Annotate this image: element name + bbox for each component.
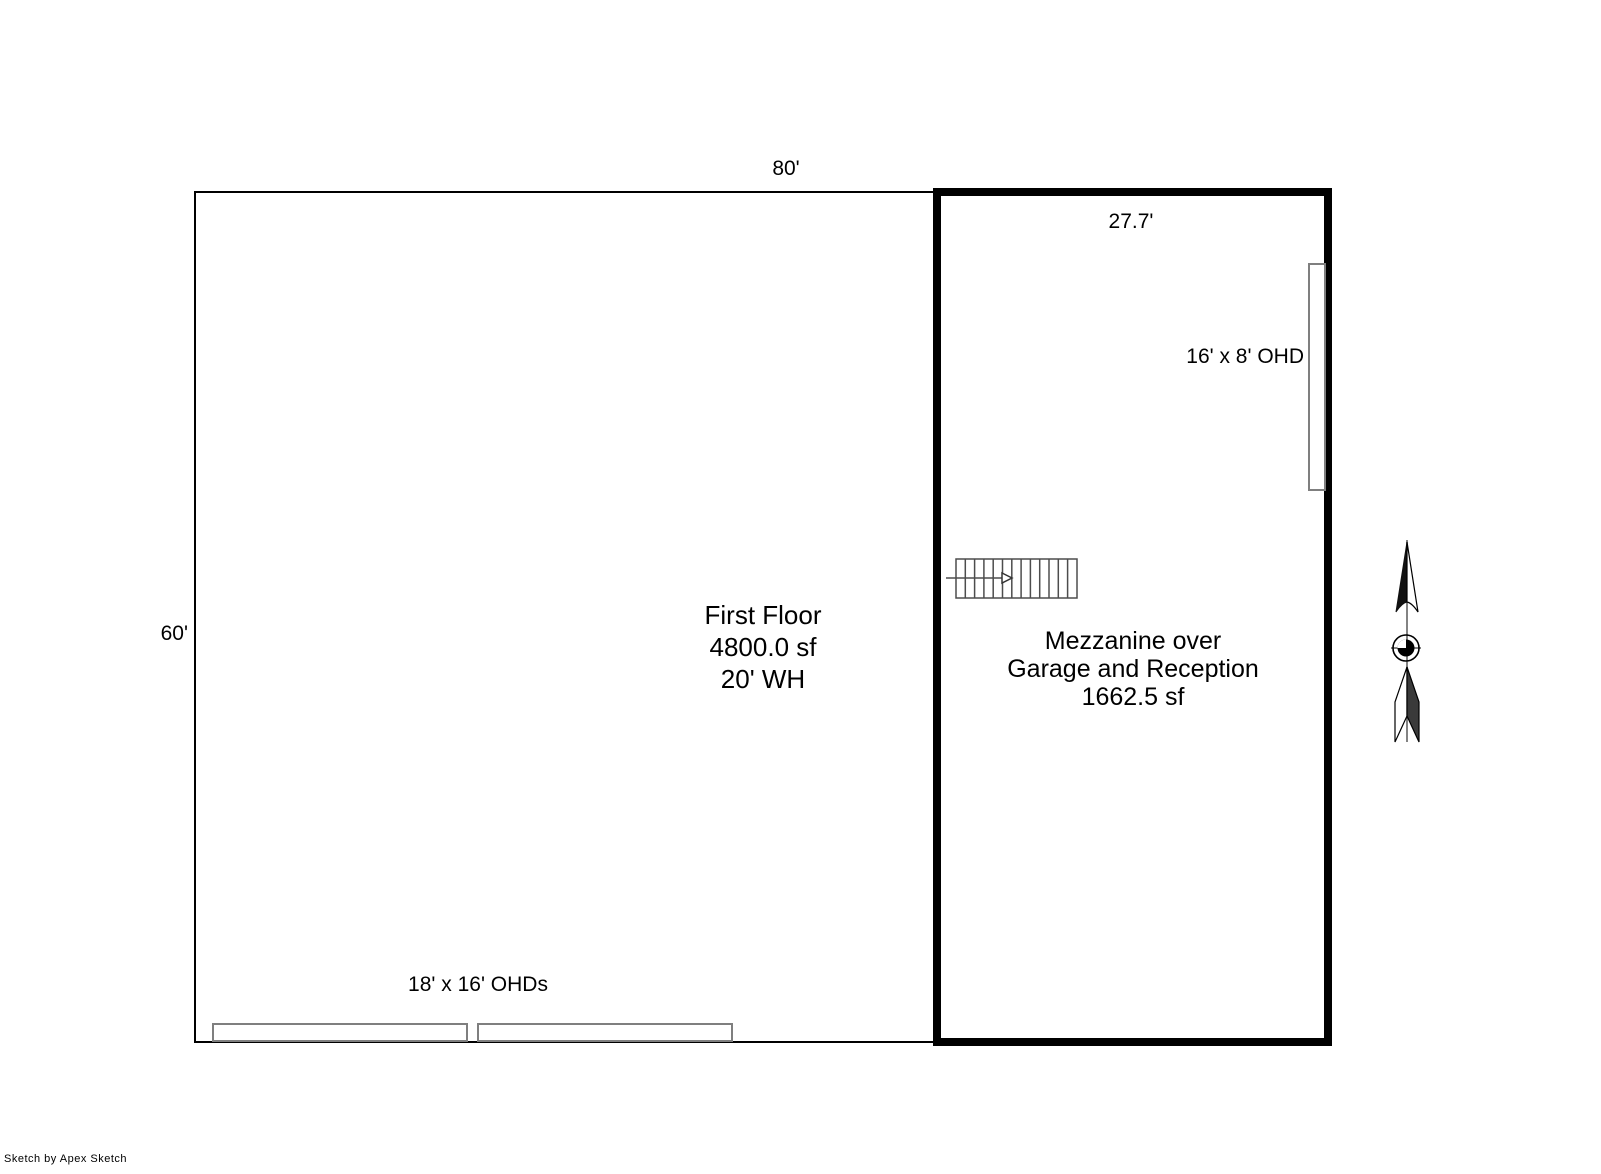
mezzanine-name-line1: Mezzanine over <box>983 627 1283 655</box>
north-fletching-light-half <box>1395 667 1407 742</box>
north-arrowhead-light-half <box>1407 542 1418 612</box>
mezzanine-room-outline <box>933 188 1332 1046</box>
mezzanine-label: Mezzanine over Garage and Reception 1662… <box>983 627 1283 711</box>
north-arrowhead-dark-half <box>1396 542 1407 612</box>
first-floor-label: First Floor 4800.0 sf 20' WH <box>613 599 913 695</box>
north-arrow-icon <box>1386 532 1428 748</box>
first-floor-area: 4800.0 sf <box>613 631 913 663</box>
overhead-door-16x8 <box>1308 263 1326 491</box>
mezzanine-name-line2: Garage and Reception <box>983 655 1283 683</box>
first-floor-overhead-doors-label: 18' x 16' OHDs <box>378 973 578 997</box>
first-floor-width-dimension: 80' <box>736 157 836 181</box>
overhead-door-18x16-left <box>212 1023 468 1042</box>
staircase-icon <box>933 553 1083 603</box>
overhead-door-18x16-right <box>477 1023 733 1042</box>
floor-plan-canvas: { "footer": { "credit": "Sketch by Apex … <box>0 0 1601 1174</box>
mezzanine-area: 1662.5 sf <box>983 683 1283 711</box>
mezzanine-overhead-door-label: 16' x 8' OHD <box>1144 345 1304 369</box>
north-bullseye-quarter <box>1398 640 1407 649</box>
sketch-credit: Sketch by Apex Sketch <box>4 1153 127 1165</box>
first-floor-height-dimension: 60' <box>130 622 188 646</box>
first-floor-wall-height: 20' WH <box>613 663 913 695</box>
mezzanine-width-dimension: 27.7' <box>1081 210 1181 234</box>
first-floor-name: First Floor <box>613 599 913 631</box>
north-fletching-dark-half <box>1407 667 1419 742</box>
